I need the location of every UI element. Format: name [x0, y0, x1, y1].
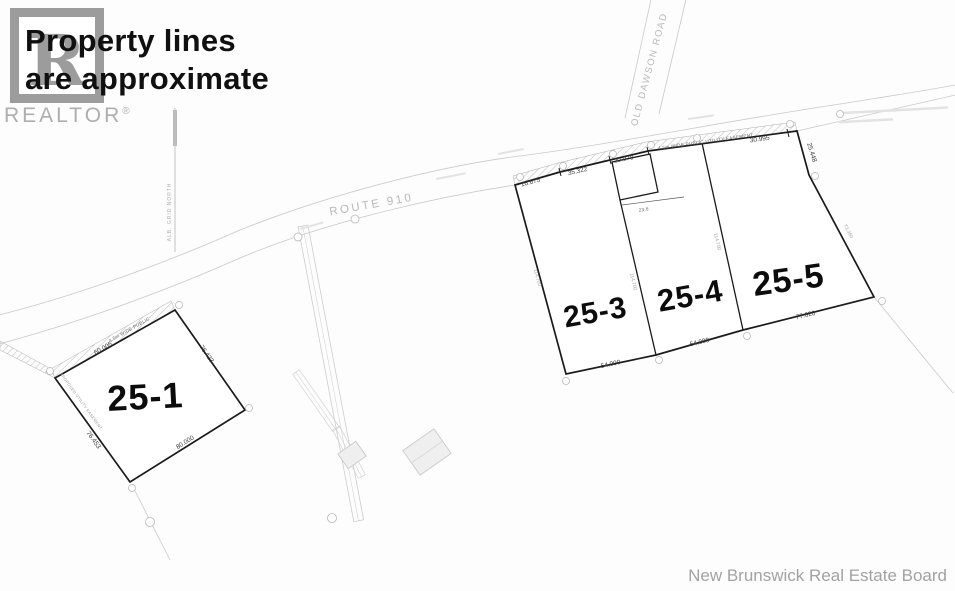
disclaimer-text: Property lines are approximate — [25, 22, 269, 98]
lot-25-5-dim-right-lower: 73.360 — [842, 223, 855, 240]
realtor-wordmark: REALTOR® — [4, 104, 130, 128]
grid-north-label: ALB. GRID NORTH — [167, 183, 173, 242]
registered-symbol: ® — [122, 106, 129, 117]
lot-25-1-label: 25-1 — [106, 374, 184, 419]
disclaimer-line-1: Property lines — [25, 22, 269, 60]
north-arrow: ALB. GRID NORTH — [167, 108, 177, 252]
old-dawson-road-label: OLD DAWSON ROAD — [629, 11, 670, 127]
survey-plan-screenshot: ALB. GRID NORTH — [0, 0, 955, 591]
realtor-wordmark-text: REALTOR — [4, 104, 122, 127]
lot-25-5-dim-right-upper: 25.448 — [805, 142, 818, 163]
disclaimer-line-2: are approximate — [25, 60, 269, 98]
attribution-text: New Brunswick Real Estate Board — [688, 566, 947, 586]
lot-25-1: 25-1 60.005 4.5m WIDE PUBLIC 76.423 80.0… — [55, 310, 245, 482]
